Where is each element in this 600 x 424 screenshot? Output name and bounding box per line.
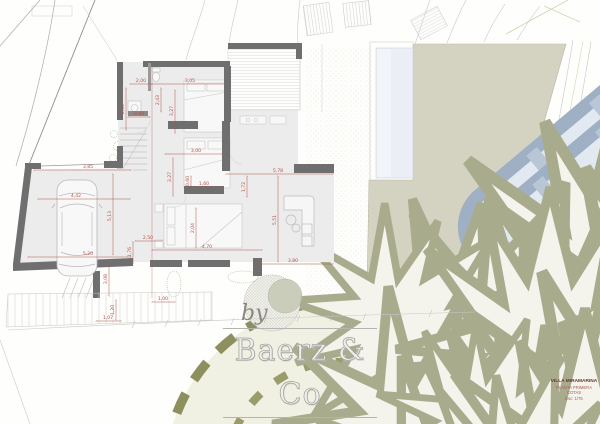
top-hatched-structures xyxy=(303,1,447,40)
dimension-label: 3,27 xyxy=(169,106,175,116)
kitchen-counter xyxy=(240,116,286,124)
dimension-label: 3,05 xyxy=(185,78,195,84)
dimension-label: 5,51 xyxy=(272,215,278,225)
dimension-label: 5,78 xyxy=(273,168,283,174)
dimension-label: 5,20 xyxy=(83,251,93,257)
title-block-project: VILLA MIRAMARINA xyxy=(550,379,598,385)
dimension-label: 0,88 xyxy=(134,111,144,117)
dimension-label: 2,04 xyxy=(190,223,196,233)
dimension-label: 5,13 xyxy=(107,211,113,221)
pool-shallow-edge xyxy=(377,49,391,177)
dimension-label: 3,00 xyxy=(191,148,201,154)
dimension-label: 2,65 xyxy=(120,104,126,114)
dimension-label: 4,70 xyxy=(202,244,212,250)
dimension-label: 3,27 xyxy=(167,172,173,182)
floorplan-canvas: 2,00 3,05 2,43 2,65 3,27 0,88 3,00 3,27 … xyxy=(0,0,600,424)
bed-bedroom3 xyxy=(155,204,242,248)
dimension-label: 2,50 xyxy=(143,235,153,241)
dimension-label: 2,00 xyxy=(136,78,146,84)
terrace-deck xyxy=(228,47,300,110)
plan-drawing: 2,00 3,05 2,43 2,65 3,27 0,88 3,00 3,27 … xyxy=(0,0,600,424)
survey-marker xyxy=(32,6,72,16)
dimension-label: 1,00 xyxy=(158,296,168,302)
garage xyxy=(13,161,133,276)
dimension-label: 3,80 xyxy=(288,258,298,264)
dimension-label: 1,76 xyxy=(127,247,133,257)
dimension-label: 3,85 xyxy=(83,164,93,170)
dimension-label: 2,43 xyxy=(155,95,161,105)
dimension-label: 1,60 xyxy=(199,181,209,187)
title-block: VILLA MIRAMARINA PLANTA PRIMERA COTAS Es… xyxy=(550,379,598,401)
title-block-scale: Esc: 1/75 xyxy=(550,396,598,402)
dimension-label: 4,42 xyxy=(71,193,81,199)
dimension-label: 3,08 xyxy=(103,274,109,284)
dimension-label: 1,20 xyxy=(110,305,116,315)
dimension-label: 1,72 xyxy=(241,182,247,192)
dimension-label: 0,60 xyxy=(185,176,191,186)
